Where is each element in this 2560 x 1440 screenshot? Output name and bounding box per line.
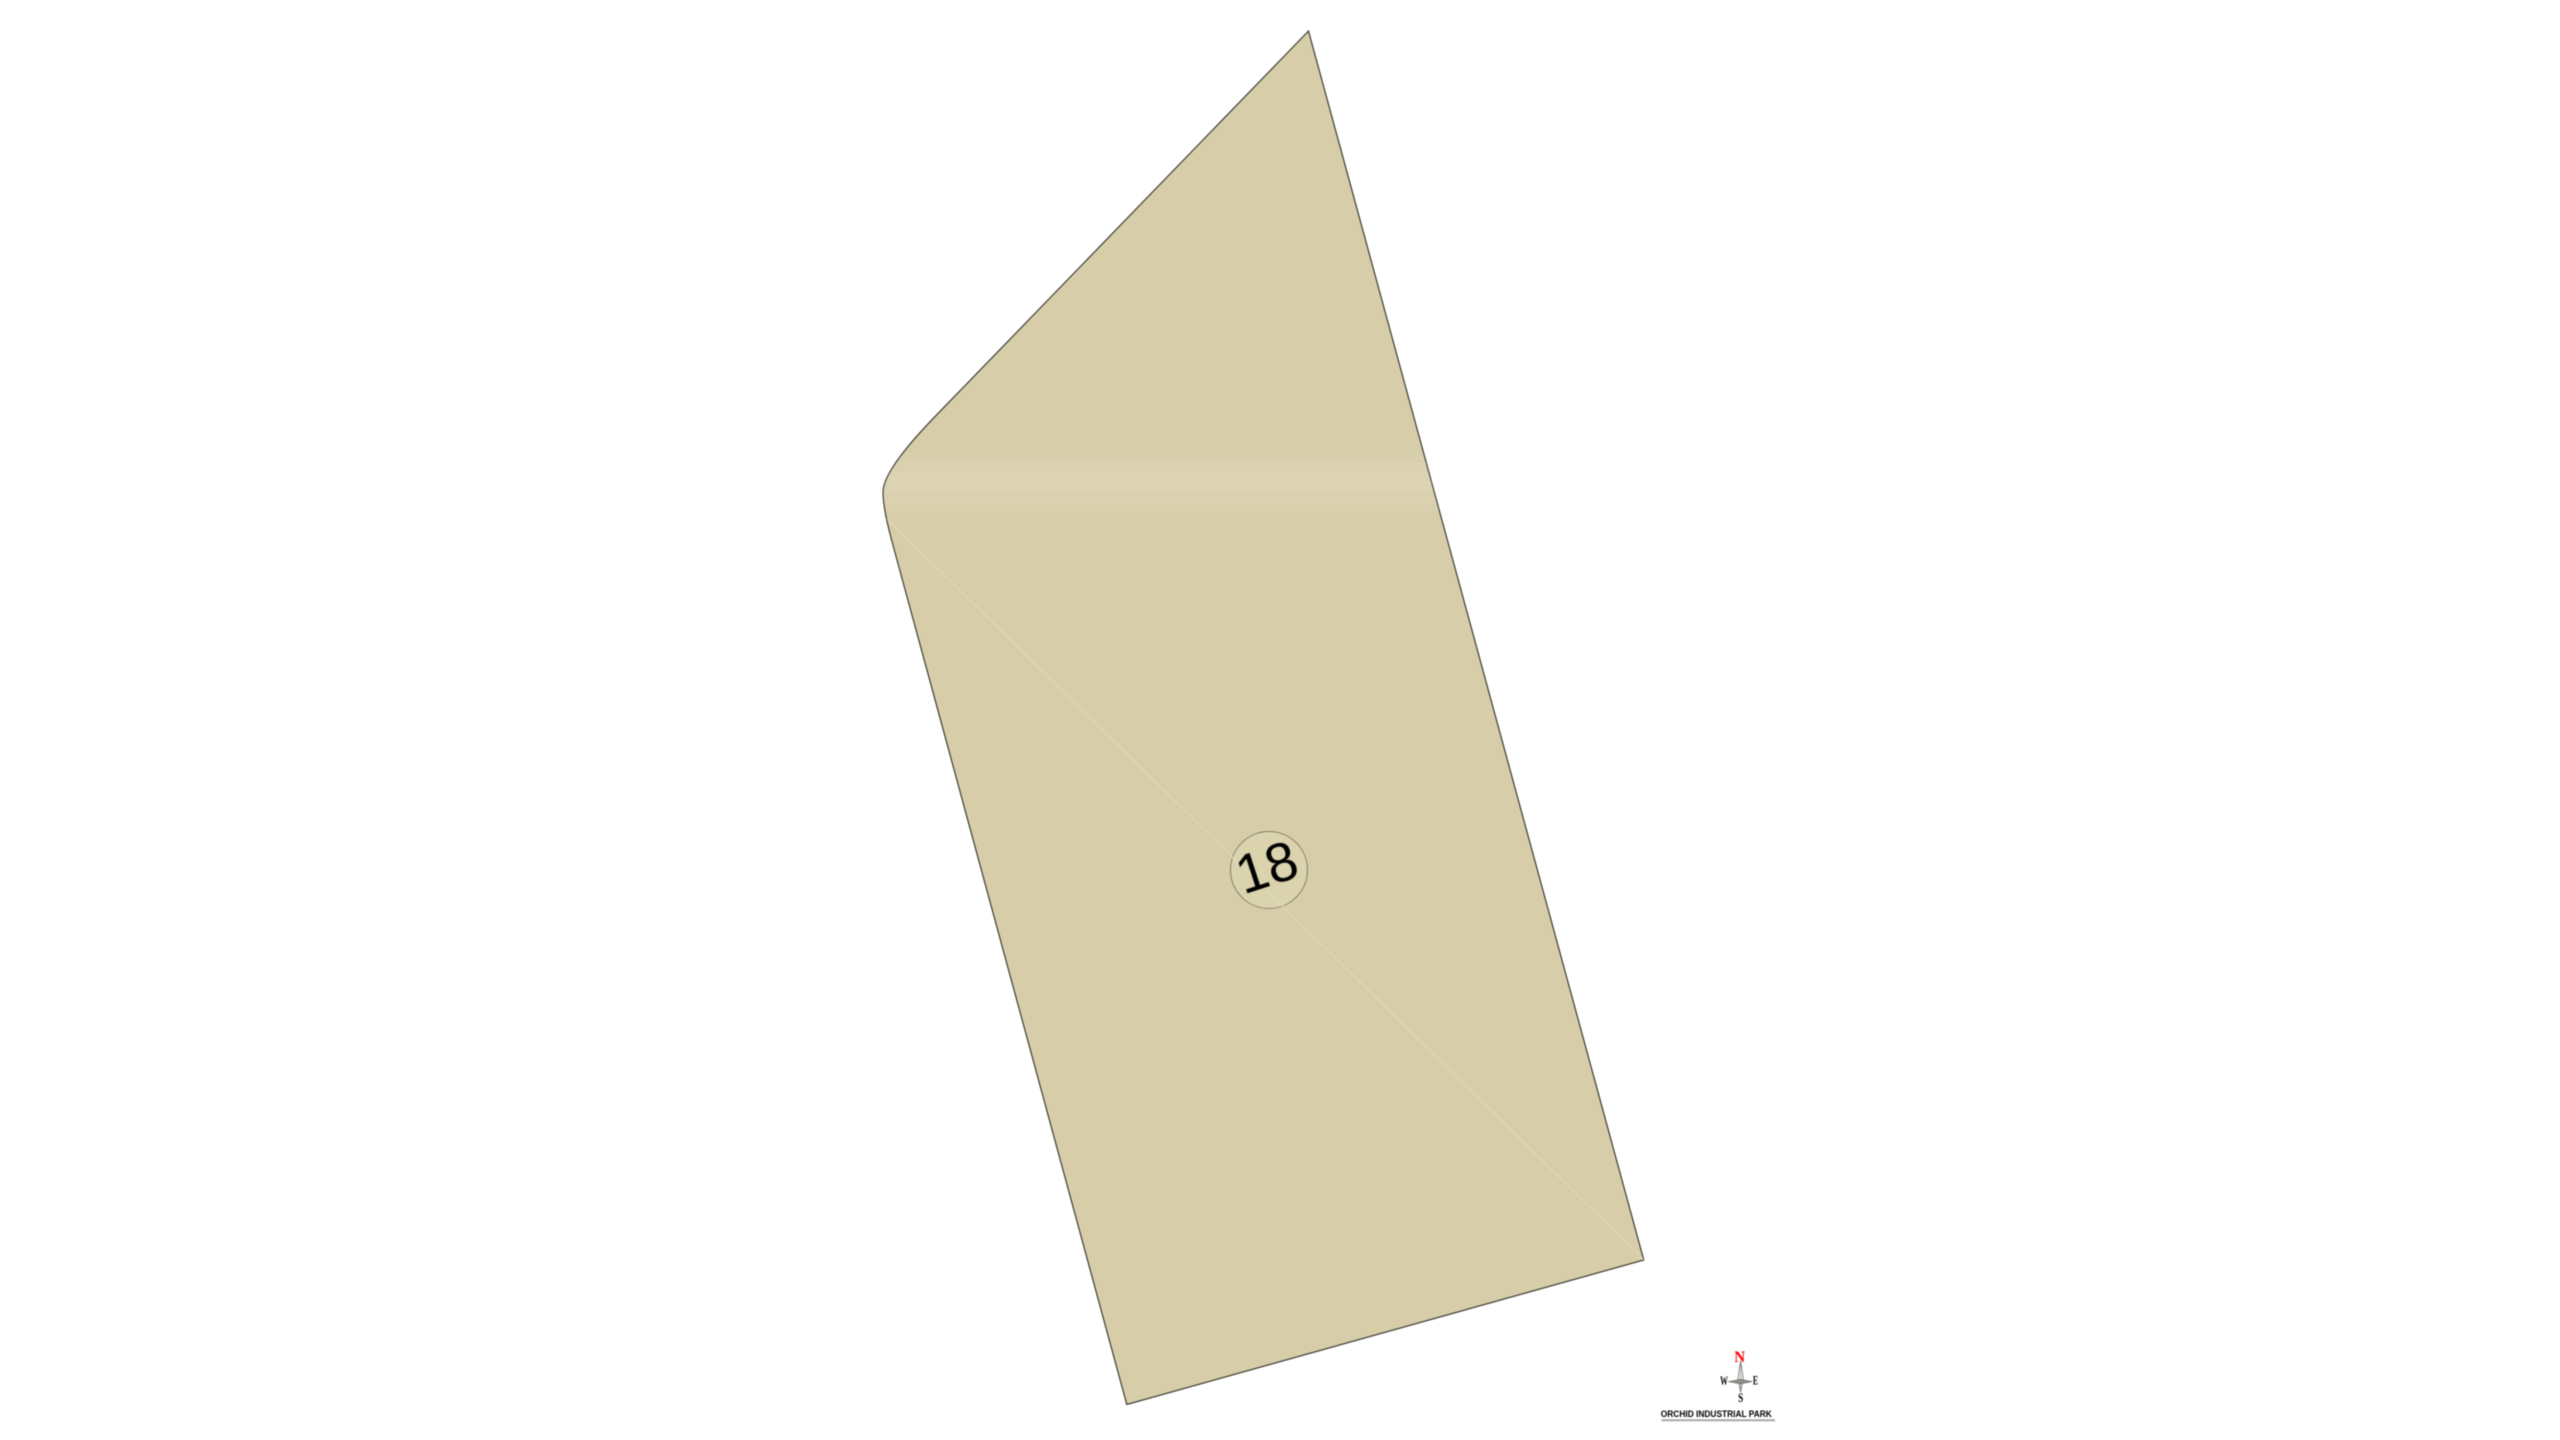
svg-text:S: S (1738, 1392, 1743, 1406)
svg-text:E: E (1753, 1373, 1758, 1388)
svg-text:W: W (1720, 1374, 1728, 1389)
svg-text:N: N (1734, 1349, 1745, 1366)
svg-text:ORCHID INDUSTRIAL PARK: ORCHID INDUSTRIAL PARK (1661, 1408, 1773, 1419)
